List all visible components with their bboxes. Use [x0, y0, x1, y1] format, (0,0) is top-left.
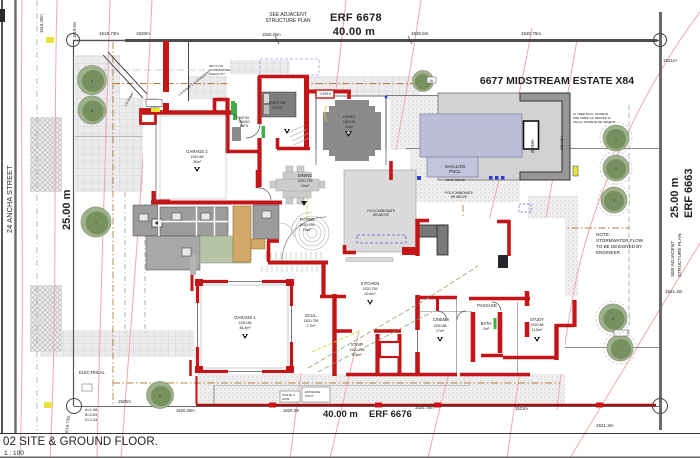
svg-text:38.4m²: 38.4m²: [239, 326, 251, 330]
svg-text:BR ABOVE: BR ABOVE: [373, 213, 389, 217]
svg-text:LIVING: LIVING: [343, 115, 355, 119]
svg-text:2.7m²: 2.7m²: [306, 324, 316, 328]
svg-text:1519.25m: 1519.25m: [39, 14, 44, 33]
svg-text:GUEST RM: GUEST RM: [269, 101, 286, 105]
svg-text:4: 4: [612, 317, 614, 321]
svg-text:A=1.08: A=1.08: [85, 408, 97, 412]
svg-text:1: 1: [615, 137, 617, 141]
svg-text:CHECK PIT: CHECK PIT: [209, 72, 225, 76]
svg-text:B=0.83: B=0.83: [85, 413, 97, 417]
svg-text:8.6m²: 8.6m²: [352, 353, 362, 357]
svg-text:SEE ADJACENT: SEE ADJACENT: [670, 241, 676, 277]
svg-text:1521.3m: 1521.3m: [665, 289, 683, 294]
svg-text:1520.755: 1520.755: [363, 287, 378, 291]
svg-text:TO BE DESIGNED BY: TO BE DESIGNED BY: [596, 244, 642, 249]
svg-text:3: 3: [613, 199, 615, 203]
svg-text:1520.25m: 1520.25m: [262, 32, 281, 37]
svg-text:PASSAGE: PASSAGE: [477, 303, 497, 308]
svg-text:4: 4: [91, 79, 93, 83]
svg-text:1 : 100: 1 : 100: [4, 450, 24, 457]
svg-text:STAIR: STAIR: [351, 342, 363, 347]
svg-text:19m²: 19m²: [303, 228, 312, 232]
svg-text:STUDY: STUDY: [530, 317, 544, 322]
svg-text:1520.755: 1520.755: [304, 319, 319, 323]
svg-text:BR ABOVE: BR ABOVE: [451, 195, 467, 199]
svg-text:PIVOT: PIVOT: [305, 394, 314, 398]
svg-text:16: 16: [429, 79, 433, 83]
svg-text:ERF 6676: ERF 6676: [369, 409, 412, 420]
svg-text:20.6m²: 20.6m²: [364, 292, 376, 296]
svg-text:ENGINEER: ENGINEER: [596, 250, 621, 255]
svg-text:1520.75m: 1520.75m: [521, 31, 541, 36]
svg-text:1521m: 1521m: [663, 58, 677, 63]
svg-text:25.00 m: 25.00 m: [669, 177, 681, 218]
svg-text:1520m: 1520m: [118, 399, 131, 404]
svg-text:FOYER: FOYER: [300, 217, 314, 222]
svg-text:BATH: BATH: [481, 321, 492, 326]
svg-text:D=1.34: D=1.34: [85, 418, 97, 422]
svg-text:GARAGE 1: GARAGE 1: [234, 315, 256, 320]
svg-text:6: 6: [159, 394, 161, 398]
svg-text:1520.88: 1520.88: [239, 321, 252, 325]
svg-text:40.00 m: 40.00 m: [333, 26, 375, 38]
svg-text:36m²: 36m²: [193, 160, 202, 164]
svg-text:11.6m²: 11.6m²: [532, 328, 544, 332]
svg-text:25.00 m: 25.00 m: [61, 189, 73, 230]
svg-text:1520.88: 1520.88: [434, 324, 447, 328]
svg-text:17m²: 17m²: [436, 329, 445, 333]
svg-text:1520.755: 1520.755: [300, 223, 315, 227]
svg-text:+1519.6: +1519.6: [319, 92, 331, 96]
svg-text:SCUL.: SCUL.: [305, 313, 317, 318]
svg-text:BOMA: BOMA: [530, 138, 535, 152]
svg-text:2m²: 2m²: [483, 327, 490, 331]
svg-text:GARAGE 2: GARAGE 2: [186, 149, 208, 154]
svg-text:1519.73m: 1519.73m: [99, 31, 119, 36]
svg-text:5: 5: [91, 109, 93, 113]
svg-text:1521m: 1521m: [515, 406, 528, 411]
svg-text:1520.755: 1520.755: [298, 179, 313, 183]
svg-text:ERF 6678: ERF 6678: [330, 12, 382, 24]
svg-text:6677 MIDSTREAM ESTATE X84: 6677 MIDSTREAM ESTATE X84: [480, 75, 634, 87]
svg-text:19m²: 19m²: [301, 184, 310, 188]
svg-text:1520.5m: 1520.5m: [411, 31, 429, 36]
svg-text:150mm DIAMETE DE CEMENT: 150mm DIAMETE DE CEMENT: [573, 120, 616, 124]
svg-text:24 ANCHA STREET: 24 ANCHA STREET: [5, 165, 14, 233]
svg-text:BENCH: BENCH: [559, 136, 564, 150]
svg-text:02 SITE & GROUND FLOOR.: 02 SITE & GROUND FLOOR.: [3, 436, 158, 448]
svg-text:1519.88: 1519.88: [272, 106, 283, 110]
svg-text:2: 2: [615, 167, 617, 171]
svg-text:1520.755: 1520.755: [350, 348, 365, 352]
svg-text:STRUCTURE PLAN: STRUCTURE PLAN: [677, 233, 683, 277]
svg-text:1520.25m: 1520.25m: [176, 408, 195, 413]
svg-text:NOTE:: NOTE:: [596, 232, 610, 237]
svg-text:STORMWATER FLOW: STORMWATER FLOW: [596, 238, 644, 243]
svg-text:KITCHEN: KITCHEN: [361, 281, 379, 286]
svg-text:POOL: POOL: [449, 169, 461, 174]
svg-text:CINEMA: CINEMA: [433, 317, 449, 322]
svg-text:1520.88: 1520.88: [531, 323, 544, 327]
svg-text:DINING: DINING: [298, 173, 313, 178]
svg-text:1520m: 1520m: [136, 31, 150, 36]
svg-text:24m²: 24m²: [345, 125, 354, 129]
svg-text:STRUCTURE PLAN: STRUCTURE PLAN: [265, 18, 311, 24]
svg-text:1521.3m: 1521.3m: [596, 423, 614, 428]
svg-text:1520.75m: 1520.75m: [415, 405, 434, 410]
svg-text:ELECTRICAL: ELECTRICAL: [79, 370, 106, 375]
svg-text:7: 7: [95, 221, 97, 225]
svg-text:GATE: GATE: [282, 397, 290, 401]
svg-text:1519.88: 1519.88: [191, 155, 204, 159]
svg-text:1519.5m: 1519.5m: [72, 21, 77, 38]
svg-text:ERF 6663: ERF 6663: [683, 168, 695, 218]
svg-text:1520.3m: 1520.3m: [283, 408, 300, 413]
svg-text:40.00 m: 40.00 m: [323, 409, 358, 420]
svg-text:JOINT ABOVE: JOINT ABOVE: [445, 178, 465, 182]
svg-text:1519.88: 1519.88: [343, 120, 355, 124]
svg-text:BATH: BATH: [240, 124, 249, 128]
